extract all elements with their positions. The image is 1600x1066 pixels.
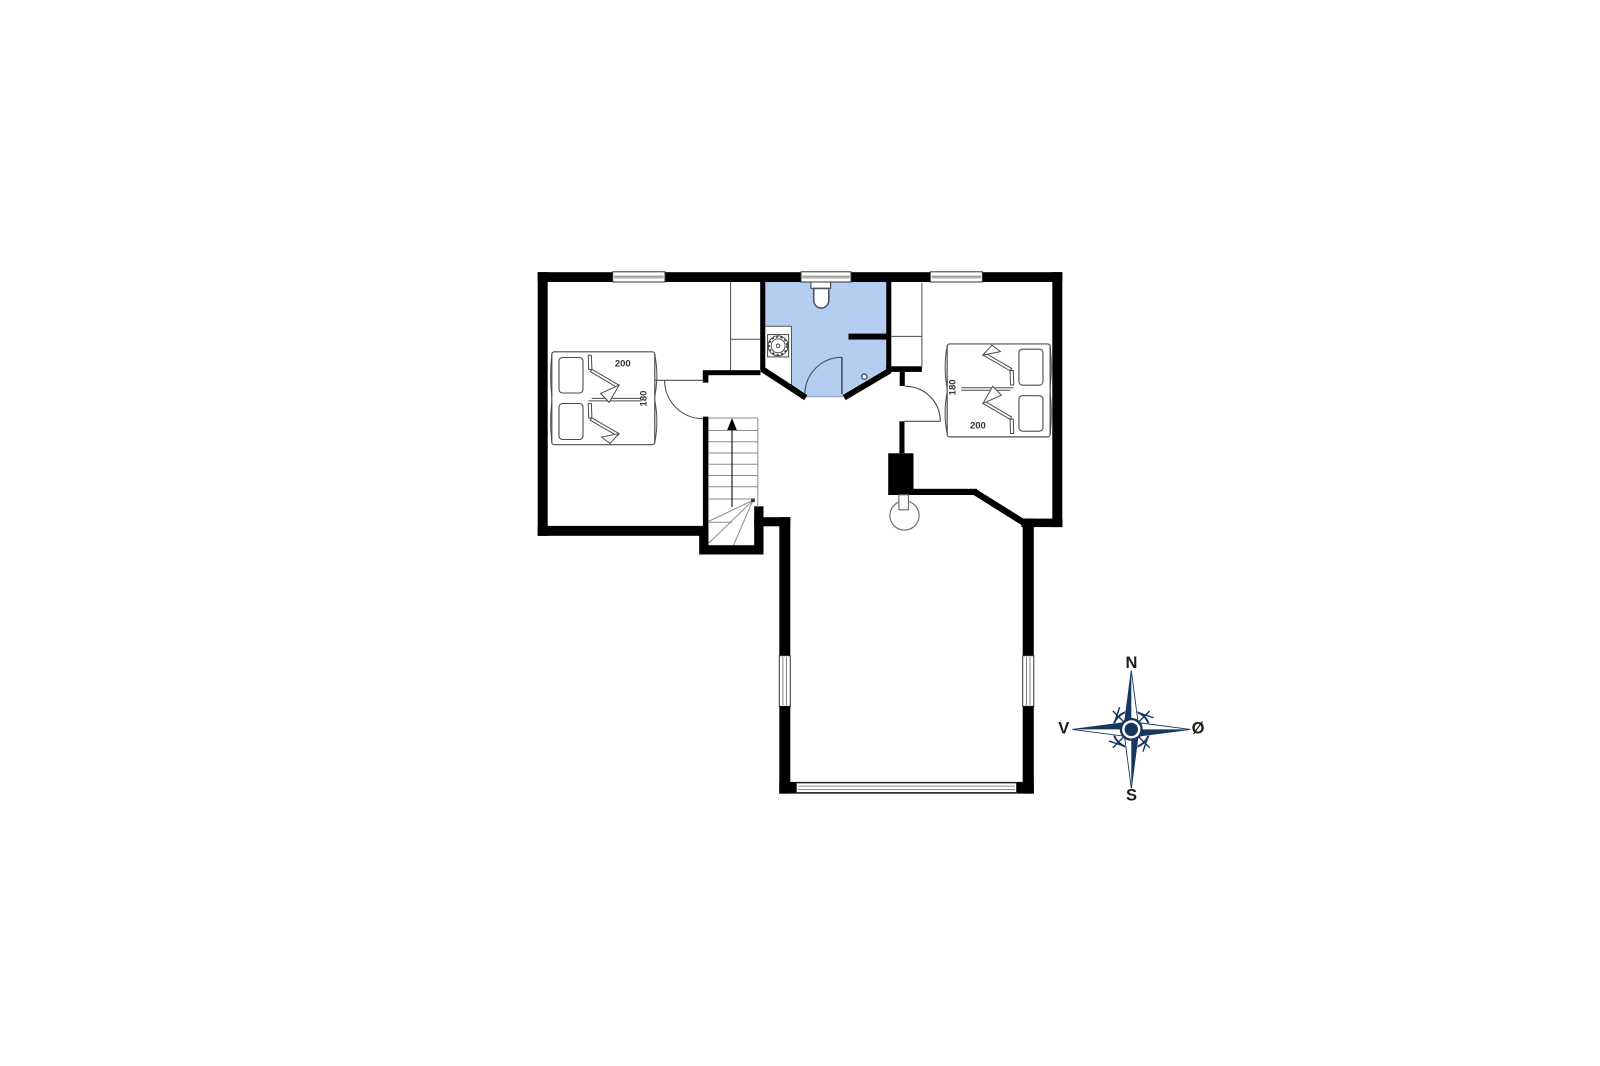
svg-text:N: N: [1126, 654, 1138, 672]
svg-text:180: 180: [948, 379, 959, 395]
svg-text:V: V: [1058, 720, 1069, 738]
svg-text:Ø: Ø: [1192, 720, 1205, 738]
svg-text:S: S: [1126, 787, 1137, 805]
svg-text:200: 200: [615, 359, 631, 370]
svg-text:200: 200: [970, 420, 986, 431]
svg-text:180: 180: [638, 391, 649, 407]
